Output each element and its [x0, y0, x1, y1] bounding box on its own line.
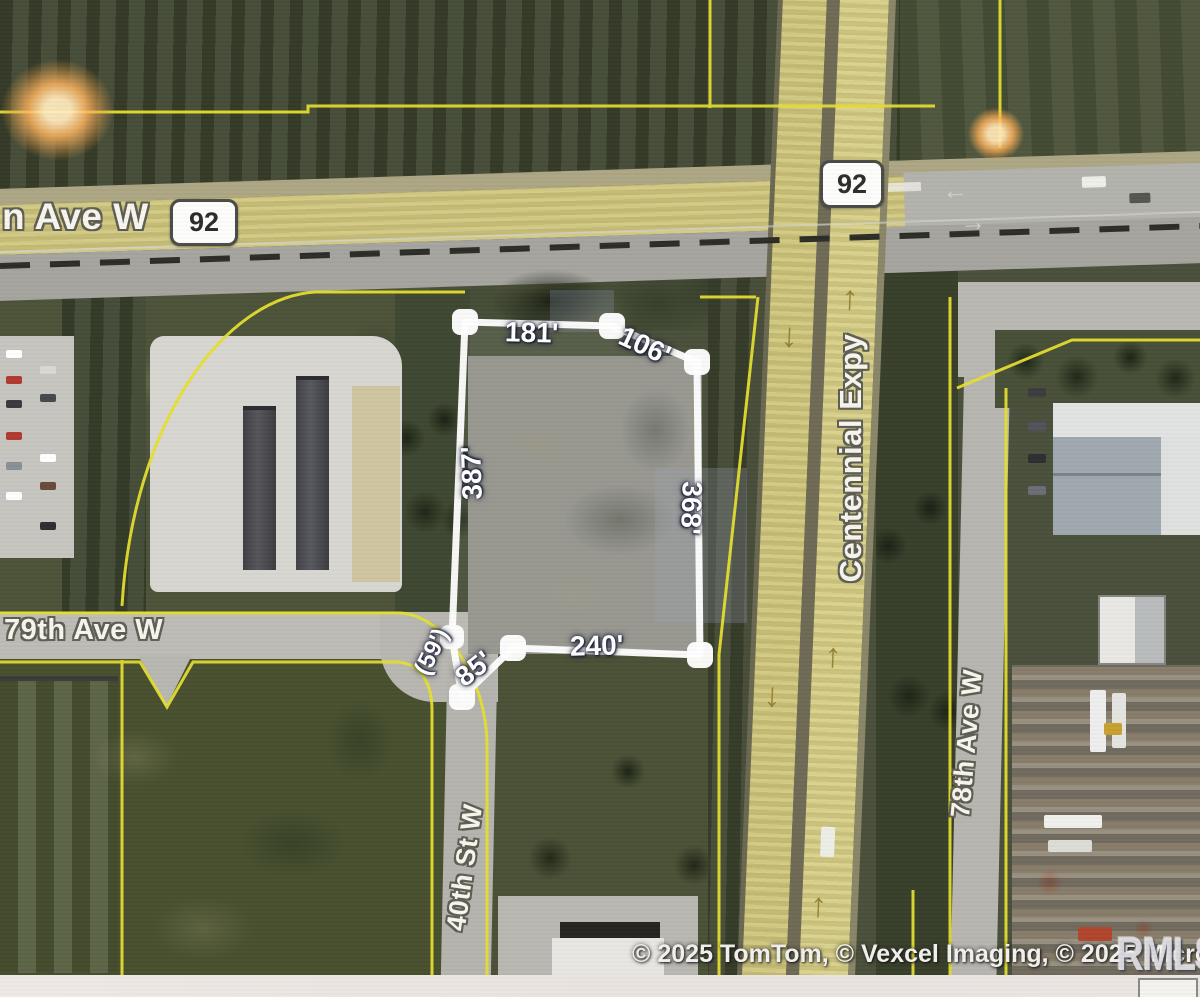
route-92-shield-number: 92: [189, 207, 219, 238]
screen-edge-widget: [1138, 978, 1198, 997]
route-92-shield: 92: [820, 160, 884, 208]
dimension-label-right: 368': [674, 464, 709, 551]
route-92-shield: 92: [170, 199, 238, 246]
light-glare: [960, 100, 1032, 168]
map-attribution: © 2025 TomTom, © Vexcel Imaging, © 2025 …: [632, 940, 1200, 969]
road-label-centennial-expy: Centennial Expy: [833, 248, 873, 668]
mls-watermark: RMLSA: [1116, 926, 1200, 981]
dimension-label-top: 181': [505, 316, 559, 349]
road-label-ave-w: n Ave W: [2, 196, 149, 238]
route-92-shield-number: 92: [837, 169, 867, 200]
dimension-label-bottom: 240': [570, 629, 624, 662]
aerial-map: ← → ↓ ↓ ↑ ↑ ↑: [0, 0, 1200, 997]
screen-edge-strip: [0, 975, 1200, 997]
dimension-label-left: 387': [455, 429, 490, 516]
road-label-79th-ave: 79th Ave W: [4, 614, 163, 647]
